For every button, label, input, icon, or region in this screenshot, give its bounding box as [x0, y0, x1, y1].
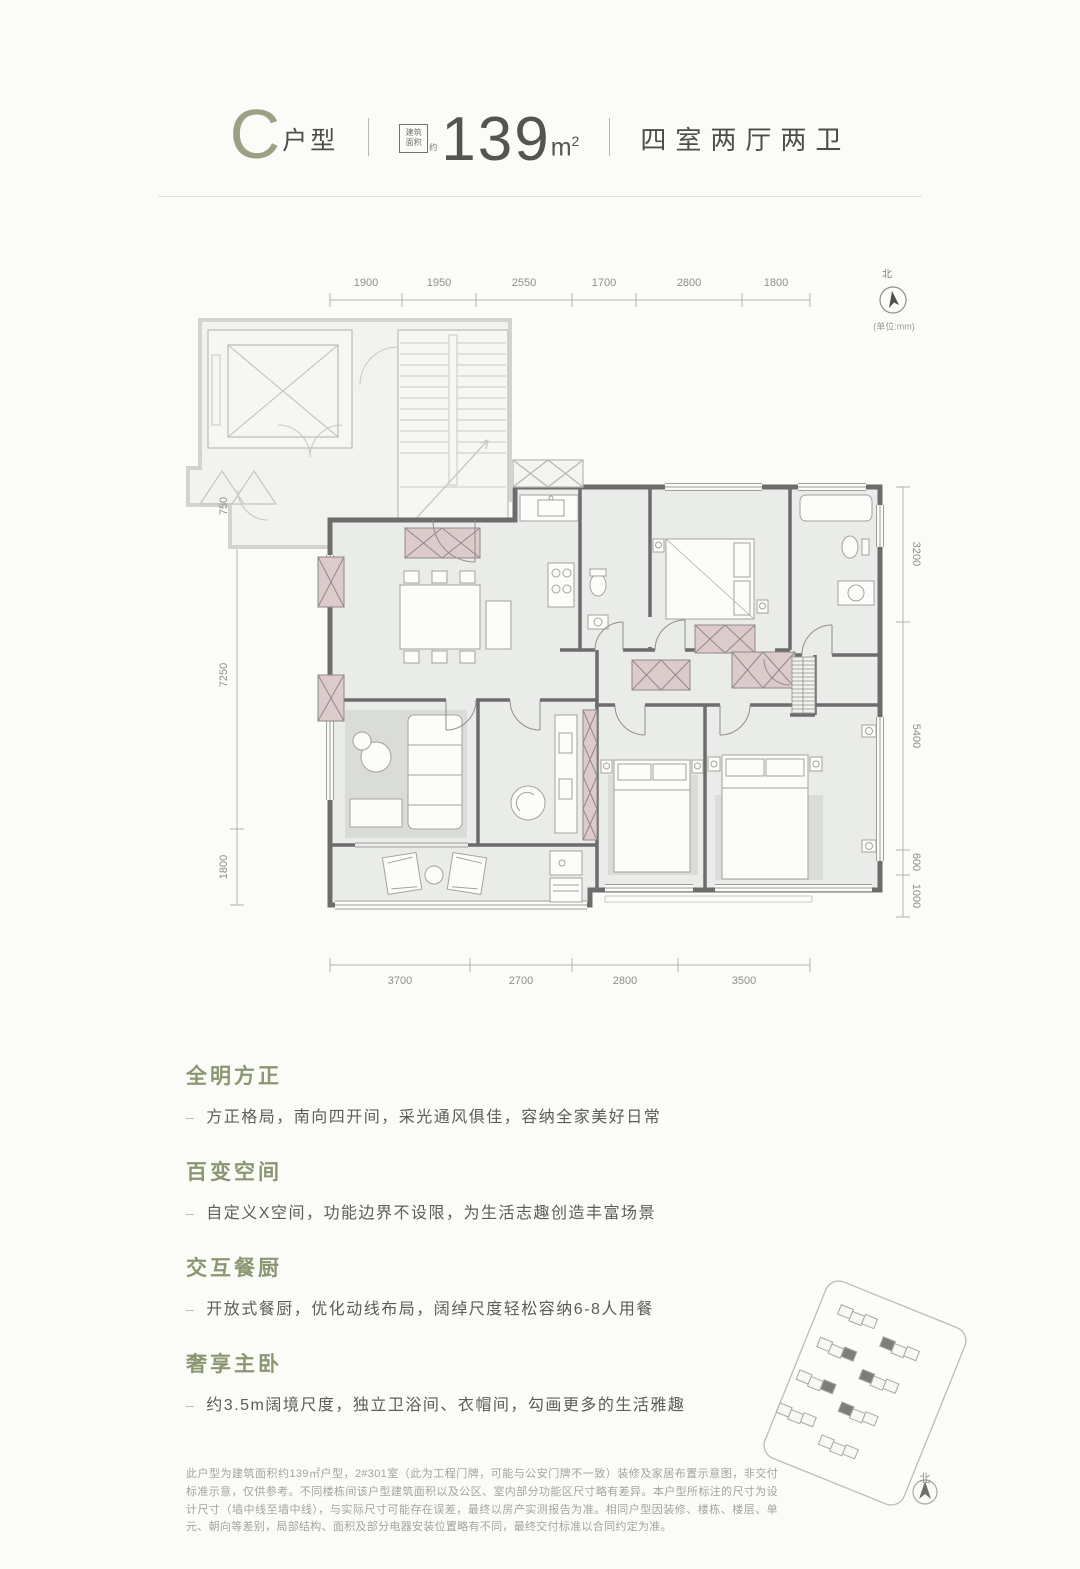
feature-1-title: 全明方正 [186, 1060, 826, 1090]
dim-right-2: 5400 [910, 724, 922, 748]
area-group: 建筑 面积 约 139 m2 [399, 115, 579, 166]
dim-left-1: 750 [218, 497, 230, 515]
dim-top-5: 2800 [677, 277, 701, 289]
area-stamp: 建筑 面积 [399, 124, 428, 153]
ac-platform [513, 460, 583, 487]
header: C 户型 建筑 面积 约 139 m2 四室两厅两卫 [0, 104, 1080, 166]
area-stamp-line1: 建筑 [406, 128, 422, 138]
floor-plan: 1900 1950 2550 1700 2800 1800 3700 2700 … [150, 255, 950, 1015]
disclaimer: 此户型为建筑面积约139㎡户型，2#301室（此为工程门牌，可能与公安门牌不一致… [186, 1466, 778, 1537]
public-core [188, 320, 510, 548]
header-divider [368, 118, 369, 156]
plan-north-label: 北 [882, 266, 892, 281]
features: 全明方正 –方正格局，南向四开间，采光通风俱佳，容纳全家美好日常 百变空间 –自… [186, 1060, 826, 1444]
dim-top-4: 1700 [592, 277, 616, 289]
floorplan-page: C 户型 建筑 面积 约 139 m2 四室两厅两卫 [0, 0, 1080, 1569]
dim-bottom-4: 3500 [732, 975, 756, 987]
feature-1: 全明方正 –方正格局，南向四开间，采光通风俱佳，容纳全家美好日常 [186, 1060, 826, 1127]
plan-unit-note: (单位:mm) [873, 320, 915, 333]
dim-right-1: 3200 [910, 542, 922, 566]
unit-type-letter: C [230, 104, 281, 166]
site-plan-drawing [735, 1268, 995, 1548]
bullet-icon: – [186, 1301, 195, 1317]
feature-4-title: 奢享主卧 [186, 1348, 826, 1378]
dim-top-1: 1900 [354, 277, 378, 289]
walkin-closet [792, 657, 815, 713]
bullet-icon: – [186, 1397, 195, 1413]
dim-top-2: 1950 [427, 277, 451, 289]
dim-left-3: 1800 [218, 855, 230, 879]
feature-2: 百变空间 –自定义X空间，功能边界不设限，为生活志趣创造丰富场景 [186, 1156, 826, 1223]
dim-right-3: 600 [910, 853, 922, 871]
feature-2-desc: 自定义X空间，功能边界不设限，为生活志趣创造丰富场景 [206, 1199, 656, 1223]
dim-top-3: 2550 [512, 277, 536, 289]
bullet-icon: – [186, 1205, 195, 1221]
feature-3: 交互餐厨 –开放式餐厨，优化动线布局，阔绰尺度轻松容纳6-8人用餐 [186, 1252, 826, 1319]
dim-right-4: 1000 [910, 884, 922, 908]
site-north-label: 北 [920, 1470, 931, 1486]
area-value: 139 [441, 115, 550, 166]
dim-bottom-3: 2800 [613, 975, 637, 987]
bullet-icon: – [186, 1109, 195, 1125]
feature-4-desc: 约3.5m阔境尺度，独立卫浴间、衣帽间，勾画更多的生活雅趣 [206, 1391, 685, 1415]
dim-left-2: 7250 [218, 663, 230, 687]
plan-compass-icon [880, 287, 906, 313]
feature-3-desc: 开放式餐厨，优化动线布局，阔绰尺度轻松容纳6-8人用餐 [206, 1295, 654, 1319]
dim-top-6: 1800 [764, 277, 788, 289]
area-unit: m2 [551, 133, 580, 165]
feature-1-desc: 方正格局，南向四开间，采光通风俱佳，容纳全家美好日常 [206, 1103, 661, 1127]
feature-2-title: 百变空间 [186, 1156, 826, 1186]
header-divider-2 [609, 118, 610, 156]
floor-plan-drawing [150, 255, 950, 1015]
area-stamp-line2: 面积 [406, 138, 422, 148]
header-rule [158, 196, 922, 197]
layout-label: 四室两厅两卫 [640, 120, 850, 166]
feature-4: 奢享主卧 –约3.5m阔境尺度，独立卫浴间、衣帽间，勾画更多的生活雅趣 [186, 1348, 826, 1415]
dim-bottom-2: 2700 [509, 975, 533, 987]
area-stamp-suffix: 约 [429, 142, 437, 153]
dim-bottom-1: 3700 [388, 975, 412, 987]
terrace-ledge [605, 896, 812, 902]
site-plan [735, 1268, 995, 1548]
feature-3-title: 交互餐厨 [186, 1252, 826, 1282]
unit-type-label: 户型 [282, 121, 338, 166]
